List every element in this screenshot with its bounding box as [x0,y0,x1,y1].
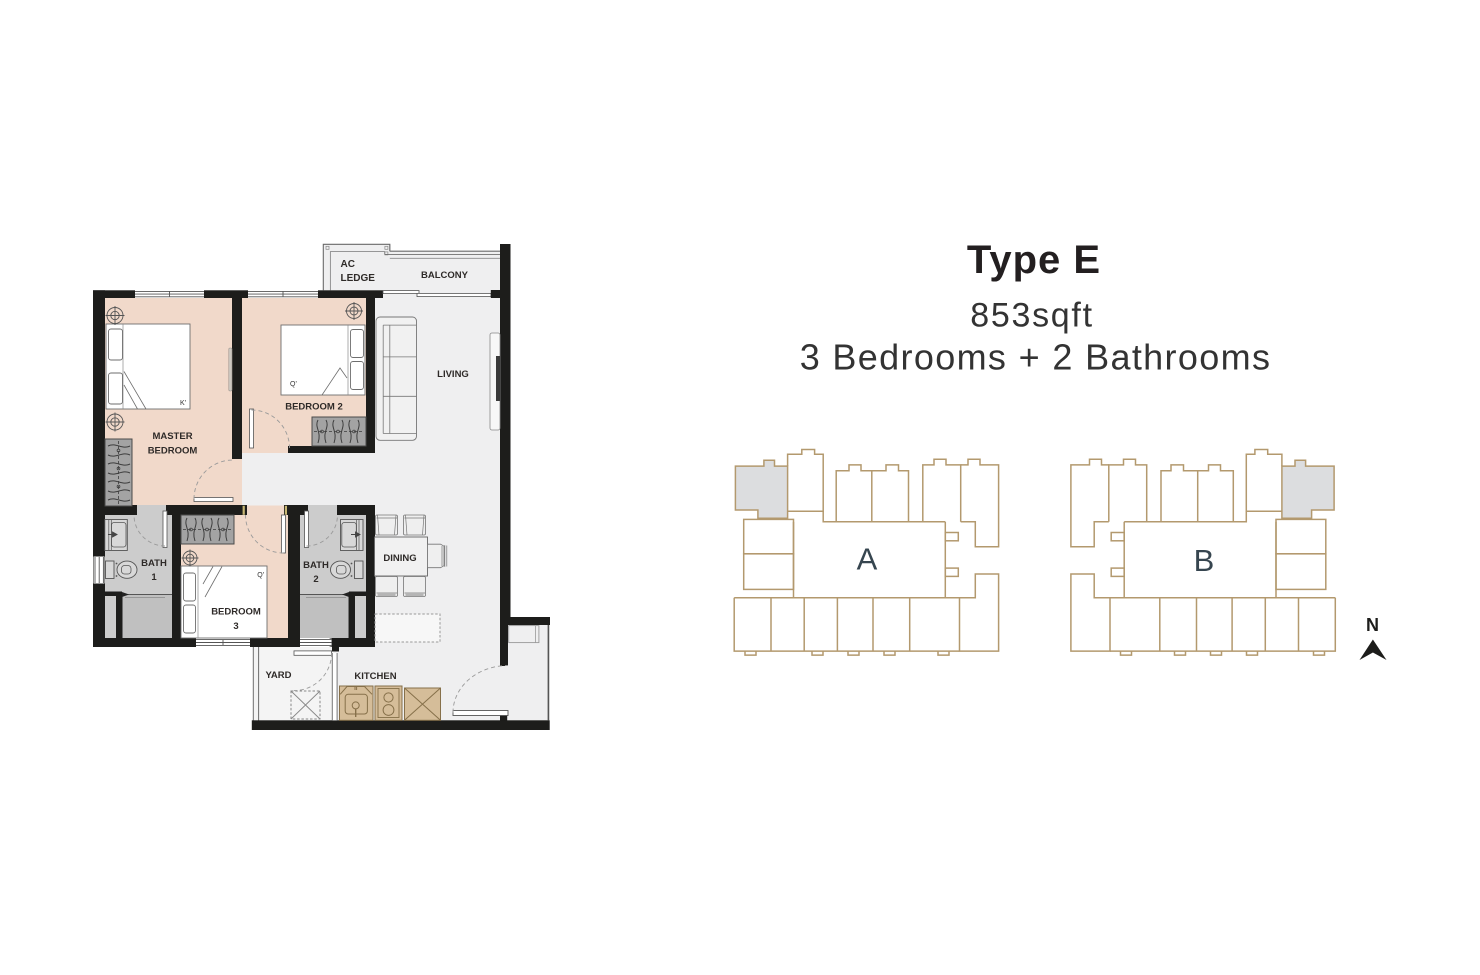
svg-text:K': K' [180,400,186,407]
svg-text:853sqft: 853sqft [970,297,1093,335]
svg-text:Q': Q' [257,572,264,579]
svg-text:B: B [1194,543,1215,578]
svg-text:1: 1 [151,572,157,583]
svg-text:A: A [857,542,878,577]
svg-text:3: 3 [233,621,238,632]
svg-text:LIVING: LIVING [437,369,469,380]
svg-text:Type E: Type E [967,238,1101,282]
svg-text:KITCHEN: KITCHEN [354,671,396,682]
svg-text:N: N [1366,615,1379,635]
svg-text:YARD: YARD [265,670,291,681]
svg-text:BEDROOM 2: BEDROOM 2 [285,402,343,413]
svg-text:BATH: BATH [141,558,167,569]
svg-text:DINING: DINING [383,553,416,564]
svg-text:LEDGE: LEDGE [341,273,376,284]
svg-text:BEDROOM: BEDROOM [148,446,198,457]
svg-text:3 Bedrooms + 2 Bathrooms: 3 Bedrooms + 2 Bathrooms [800,337,1272,378]
svg-text:MASTER: MASTER [152,431,192,442]
svg-text:BEDROOM: BEDROOM [211,607,261,618]
svg-text:2: 2 [313,574,318,585]
svg-text:BALCONY: BALCONY [421,270,469,281]
svg-text:Q': Q' [290,381,297,388]
svg-text:BATH: BATH [303,560,329,571]
svg-text:AC: AC [341,259,355,270]
